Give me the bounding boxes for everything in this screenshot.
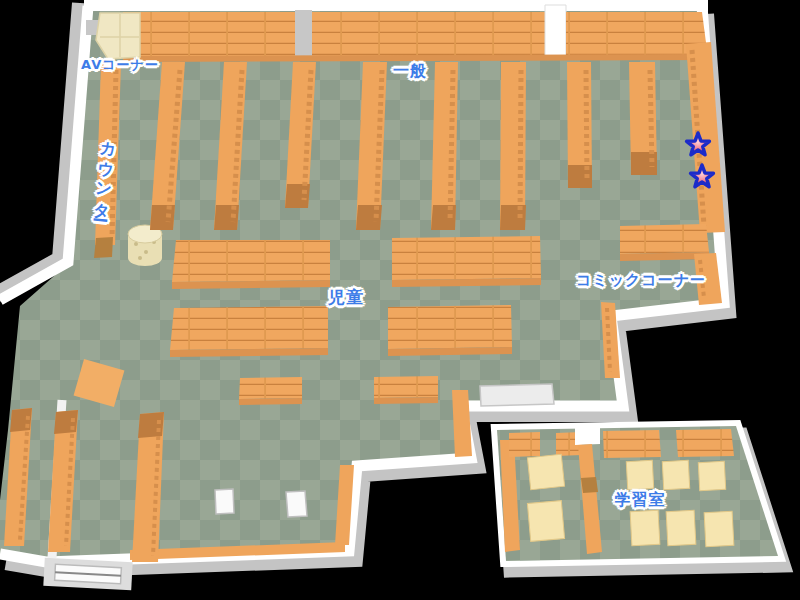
- library-floor-map: AVコーナー 一般 カウンター 児童 コミックコーナー 学習室: [0, 0, 800, 600]
- kids-table: [480, 384, 554, 406]
- wall-gap-white: [545, 5, 566, 58]
- wall-shelves-top: [123, 5, 708, 62]
- area-label-general: 一般: [393, 61, 427, 82]
- counter-end: [94, 237, 113, 258]
- spinner-rack: [128, 225, 162, 266]
- area-label-av-corner: AVコーナー: [81, 56, 159, 74]
- area-label-comic-corner: コミックコーナー: [576, 271, 706, 290]
- white-cabinet: [215, 489, 234, 514]
- area-label-children: 児童: [328, 286, 364, 309]
- study-divider-wall: [575, 425, 600, 445]
- top-wall: [84, 0, 708, 11]
- wall-gap-gray: [295, 10, 312, 58]
- entrance-door[interactable]: [43, 558, 132, 591]
- area-label-study-room: 学習室: [615, 490, 666, 511]
- white-cabinet: [286, 491, 307, 517]
- floor-map-graphic: [0, 0, 800, 600]
